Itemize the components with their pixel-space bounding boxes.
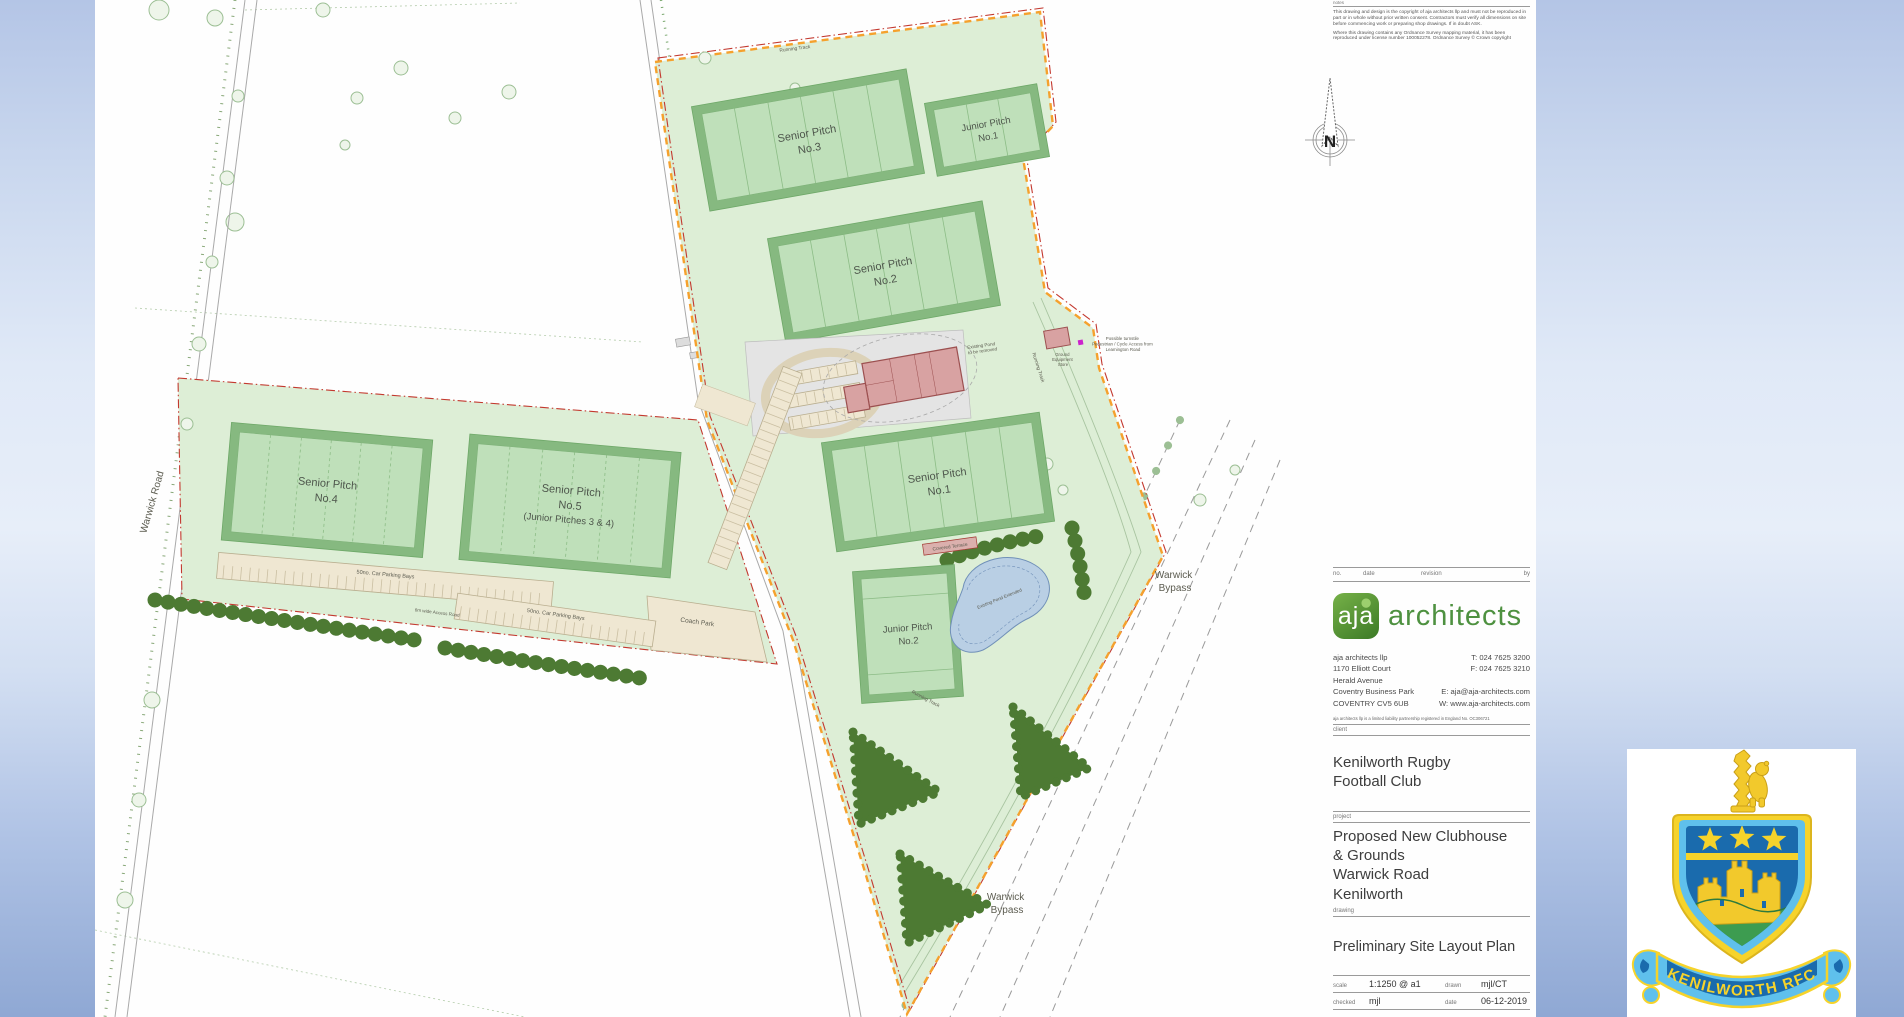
drawn-value: mjl/CT — [1481, 979, 1530, 989]
revision-by-label: by — [1514, 571, 1530, 577]
contact-lines: T: 024 7625 3200 F: 024 7625 3210 E: aja… — [1439, 652, 1530, 709]
checked-row: checked mjl date 06-12-2019 — [1333, 994, 1530, 1008]
warwick-bypass-label-2: Warwick Bypass — [987, 892, 1027, 916]
aja-logo-mark: aja — [1333, 593, 1379, 639]
address-line: Coventry Business Park — [1333, 686, 1414, 697]
notes-paragraph-2: Where this drawing contains any Ordnance… — [1333, 31, 1530, 43]
warwick-road-label: Warwick Road — [138, 470, 166, 535]
scale-row: scale 1:1250 @ a1 drawn mjl/CT — [1333, 977, 1530, 991]
drawing-label: drawing — [1333, 907, 1530, 915]
revision-revision-label: revision — [1421, 571, 1514, 577]
project-line: & Grounds — [1333, 846, 1530, 865]
svg-text:Possible turnstile P: Possible turnstile Pedestrian / Cycle Ac… — [1092, 336, 1154, 352]
registration-line: aja architects llp is a limited liabilit… — [1333, 716, 1530, 721]
address-line: COVENTRY CV5 6UB — [1333, 698, 1414, 709]
scale-label: scale — [1333, 983, 1369, 989]
contact-line: T: 024 7625 3200 — [1439, 652, 1530, 663]
notes-paragraph-1: This drawing and design is the copyright… — [1333, 10, 1530, 28]
revision-no-label: no. — [1333, 571, 1363, 577]
project-name: Proposed New Clubhouse & Grounds Warwick… — [1333, 827, 1530, 904]
project-line: Proposed New Clubhouse — [1333, 827, 1530, 846]
drawn-label: drawn — [1445, 983, 1481, 989]
address-line: aja architects llp — [1333, 652, 1414, 663]
crest-bear-and-staff — [1731, 750, 1770, 812]
address-line: 1170 Elliott Court — [1333, 663, 1414, 674]
drawing-sheet: Senior Pitch No.3 Junior Pitch No.1 Seni… — [95, 0, 1536, 1017]
date-value: 06-12-2019 — [1481, 996, 1530, 1006]
client-line: Kenilworth Rugby — [1333, 753, 1530, 773]
equipment-store — [1044, 327, 1071, 349]
site-plan: Senior Pitch No.3 Junior Pitch No.1 Seni… — [95, 0, 1536, 1017]
contact-line: E: aja@aja-architects.com — [1439, 686, 1530, 697]
pitch-label: No.5 — [558, 499, 582, 513]
notes-label: notes — [1333, 0, 1530, 5]
title-block: notes This drawing and design is the cop… — [1333, 0, 1530, 1017]
slide-background: Senior Pitch No.3 Junior Pitch No.1 Seni… — [0, 0, 1904, 1017]
project-line: Warwick Road — [1333, 865, 1530, 884]
revision-date-label: date — [1363, 571, 1421, 577]
kenilworth-rfc-badge: KENILWORTH RFC — [1627, 749, 1856, 1017]
club-crest: KENILWORTH RFC — [1627, 749, 1856, 1017]
client-label: client — [1333, 726, 1530, 734]
client-line: Football Club — [1333, 772, 1530, 792]
pitch-label: No.4 — [314, 492, 338, 506]
contact-line: F: 024 7625 3210 — [1439, 663, 1530, 674]
notes-block: notes This drawing and design is the cop… — [1333, 0, 1530, 42]
contact-line — [1439, 675, 1530, 686]
scale-value: 1:1250 @ a1 — [1369, 979, 1445, 989]
project-line: Kenilworth — [1333, 885, 1530, 904]
pitch-senior-5: Senior Pitch No.5 (Junior Pitches 3 & 4) — [459, 434, 681, 578]
pitch-senior-4: Senior Pitch No.4 — [221, 422, 433, 557]
crest-shield — [1627, 749, 1811, 963]
revision-header: no. date revision by — [1333, 569, 1530, 580]
banner-curl-left — [1633, 950, 1659, 1003]
address-line: Herald Avenue — [1333, 675, 1414, 686]
date-label: date — [1445, 1000, 1481, 1006]
address-block: aja architects llp 1170 Elliott Court He… — [1333, 652, 1530, 709]
checked-value: mjl — [1369, 996, 1445, 1006]
project-label: project — [1333, 813, 1530, 821]
contact-line: W: www.aja-architects.com — [1439, 698, 1530, 709]
pitch-junior-2: Junior Pitch No.2 — [853, 565, 964, 704]
address-lines: aja architects llp 1170 Elliott Court He… — [1333, 652, 1414, 709]
checked-label: checked — [1333, 1000, 1369, 1006]
client-name: Kenilworth Rugby Football Club — [1333, 753, 1530, 792]
warwick-bypass-label-1: Warwick Bypass — [1155, 570, 1195, 594]
drawing-title: Preliminary Site Layout Plan — [1333, 939, 1530, 955]
aja-logo: aja architects — [1333, 593, 1530, 639]
aja-logo-name: architects — [1388, 600, 1522, 633]
pitch-label: No.2 — [898, 635, 919, 647]
